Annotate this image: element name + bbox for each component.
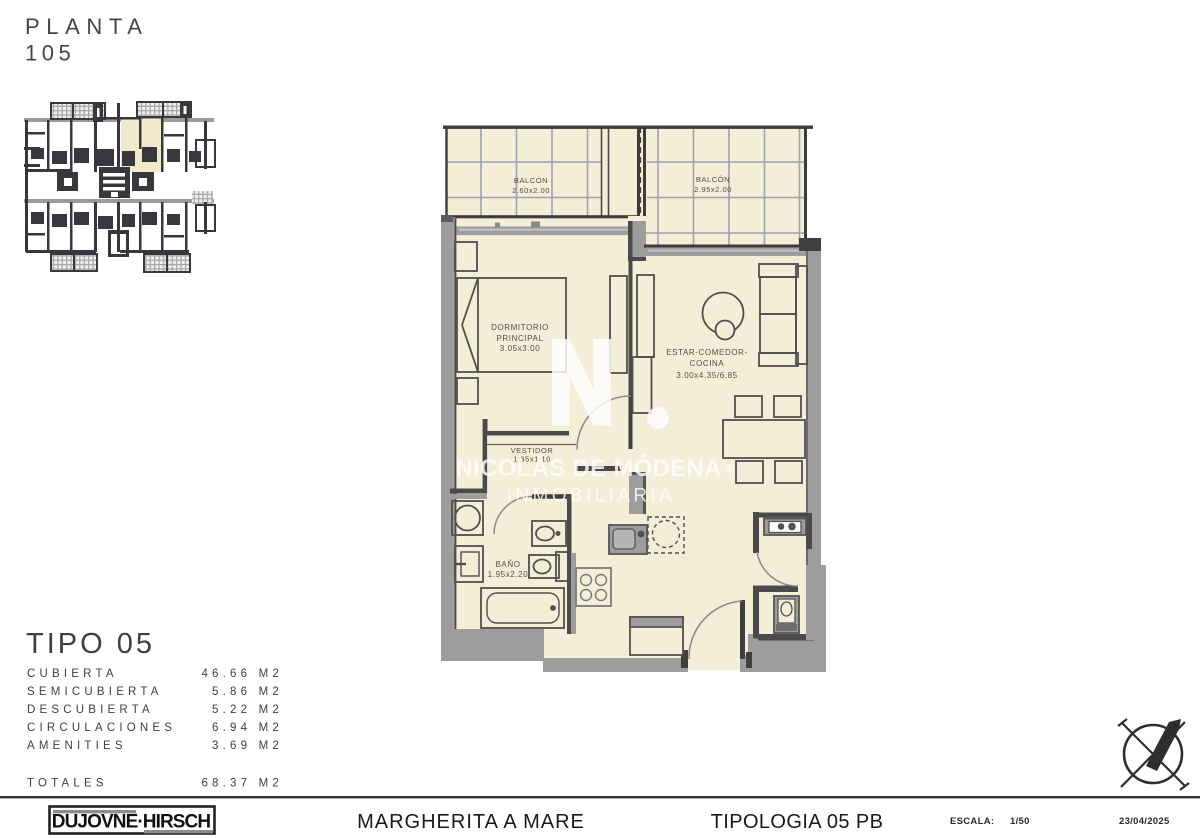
- svg-text:BALCÓN: BALCÓN: [696, 175, 730, 184]
- svg-text:TIPOLOGIA 05 PB: TIPOLOGIA 05 PB: [711, 811, 884, 833]
- svg-text:AMENITIES: AMENITIES: [27, 740, 127, 752]
- svg-text:DESCUBIERTA: DESCUBIERTA: [27, 704, 154, 716]
- svg-text:CIRCULACIONES: CIRCULACIONES: [27, 722, 176, 734]
- svg-text:68.37 M2: 68.37 M2: [201, 778, 283, 790]
- svg-text:3.00x4.35/6.85: 3.00x4.35/6.85: [676, 371, 737, 380]
- svg-text:5.86 M2: 5.86 M2: [212, 686, 283, 698]
- svg-text:NICOLÁS DE MÓDENA ®: NICOLÁS DE MÓDENA ®: [455, 454, 734, 482]
- svg-text:46.66 M2: 46.66 M2: [201, 668, 283, 680]
- svg-text:SEMICUBIERTA: SEMICUBIERTA: [27, 686, 163, 698]
- svg-text:BALCÓN: BALCÓN: [514, 176, 548, 185]
- svg-text:2.60x2.00: 2.60x2.00: [512, 186, 550, 195]
- svg-text:MARGHERITA A MARE: MARGHERITA A MARE: [357, 811, 585, 833]
- svg-text:1/50: 1/50: [1010, 816, 1030, 827]
- svg-text:1.95x2.20: 1.95x2.20: [488, 570, 529, 579]
- svg-text:DUJOVNE·HIRSCH: DUJOVNE·HIRSCH: [52, 812, 211, 833]
- svg-text:23/04/2025: 23/04/2025: [1119, 816, 1170, 827]
- svg-text:2.95x2.00: 2.95x2.00: [694, 185, 732, 194]
- svg-text:6.94 M2: 6.94 M2: [212, 722, 283, 734]
- svg-text:BAÑO: BAÑO: [495, 560, 520, 569]
- svg-text:INMOBILIARIA: INMOBILIARIA: [507, 486, 676, 507]
- svg-text:ESTAR-COMEDOR-: ESTAR-COMEDOR-: [666, 348, 748, 357]
- svg-text:TIPO 05: TIPO 05: [26, 628, 155, 660]
- svg-text:COCINA: COCINA: [690, 359, 725, 368]
- svg-text:TOTALES: TOTALES: [27, 778, 108, 790]
- svg-text:DORMITORIO: DORMITORIO: [491, 323, 549, 332]
- svg-text:CUBIERTA: CUBIERTA: [27, 668, 118, 680]
- svg-text:PLANTA: PLANTA: [25, 14, 149, 39]
- svg-text:105: 105: [25, 41, 75, 66]
- svg-text:3.69 M2: 3.69 M2: [212, 740, 283, 752]
- svg-text:5.22 M2: 5.22 M2: [212, 704, 283, 716]
- svg-text:PRINCIPAL: PRINCIPAL: [496, 334, 543, 343]
- svg-text:3.05x3.00: 3.05x3.00: [500, 344, 541, 353]
- svg-text:ESCALA:: ESCALA:: [950, 816, 994, 827]
